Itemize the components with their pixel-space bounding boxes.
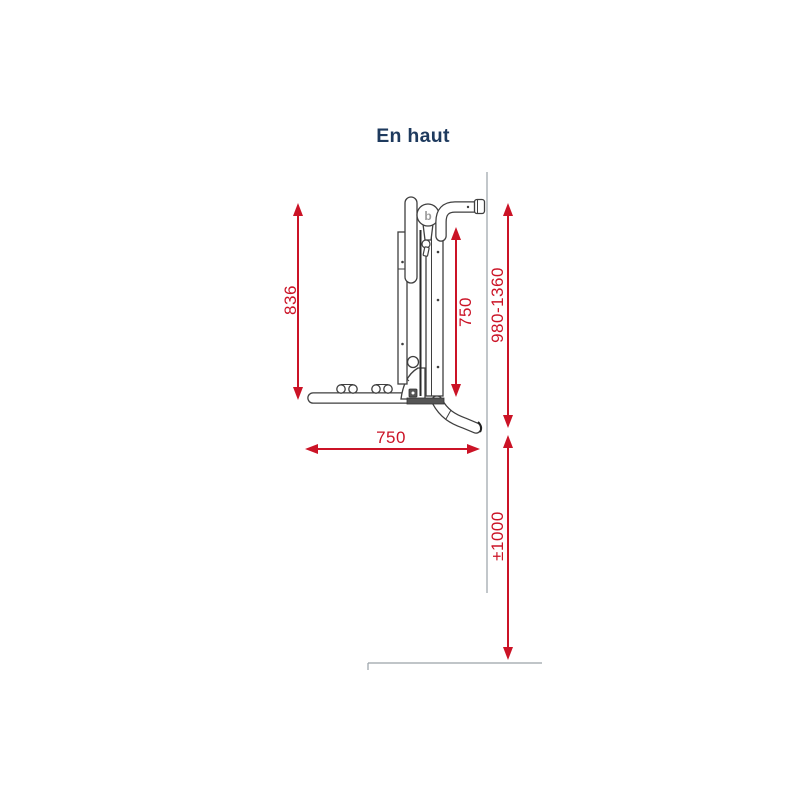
dimension-wall-mount-height-label: 980-1360 [488,267,507,343]
wheel-roller [384,385,392,393]
pivot-ring [408,357,419,368]
diagram-page: En haut [0,0,800,800]
wheel-roller [372,385,380,393]
dimension-left-height: 836 [281,203,303,400]
clamp-plate [407,398,444,404]
top-arm [441,200,485,237]
support-leg [437,401,481,432]
wheel-roller [337,385,345,393]
dimension-diagram: En haut [0,0,800,800]
wall-hook-cap [475,200,485,214]
handle-bar [405,197,417,283]
dimension-mast-height: 750 [451,227,475,397]
wheel-roller [349,385,357,393]
dimension-arm-length: 750 [305,428,480,454]
wheel-arm [313,385,412,399]
dimension-wall-mount-height: 980-1360 [488,203,513,428]
dimension-arm-length-label: 750 [376,428,406,447]
dimension-left-height-label: 836 [281,285,300,315]
dimension-ground-clearance-label: ±1000 [488,511,507,561]
rail-and-handle [398,197,417,384]
diagram-title: En haut [376,125,450,147]
dimension-mast-height-label: 750 [456,297,475,327]
dimension-ground-clearance: ±1000 [488,435,513,660]
ground-reference-line [368,663,542,670]
brand-logo-letter: b [424,209,431,223]
